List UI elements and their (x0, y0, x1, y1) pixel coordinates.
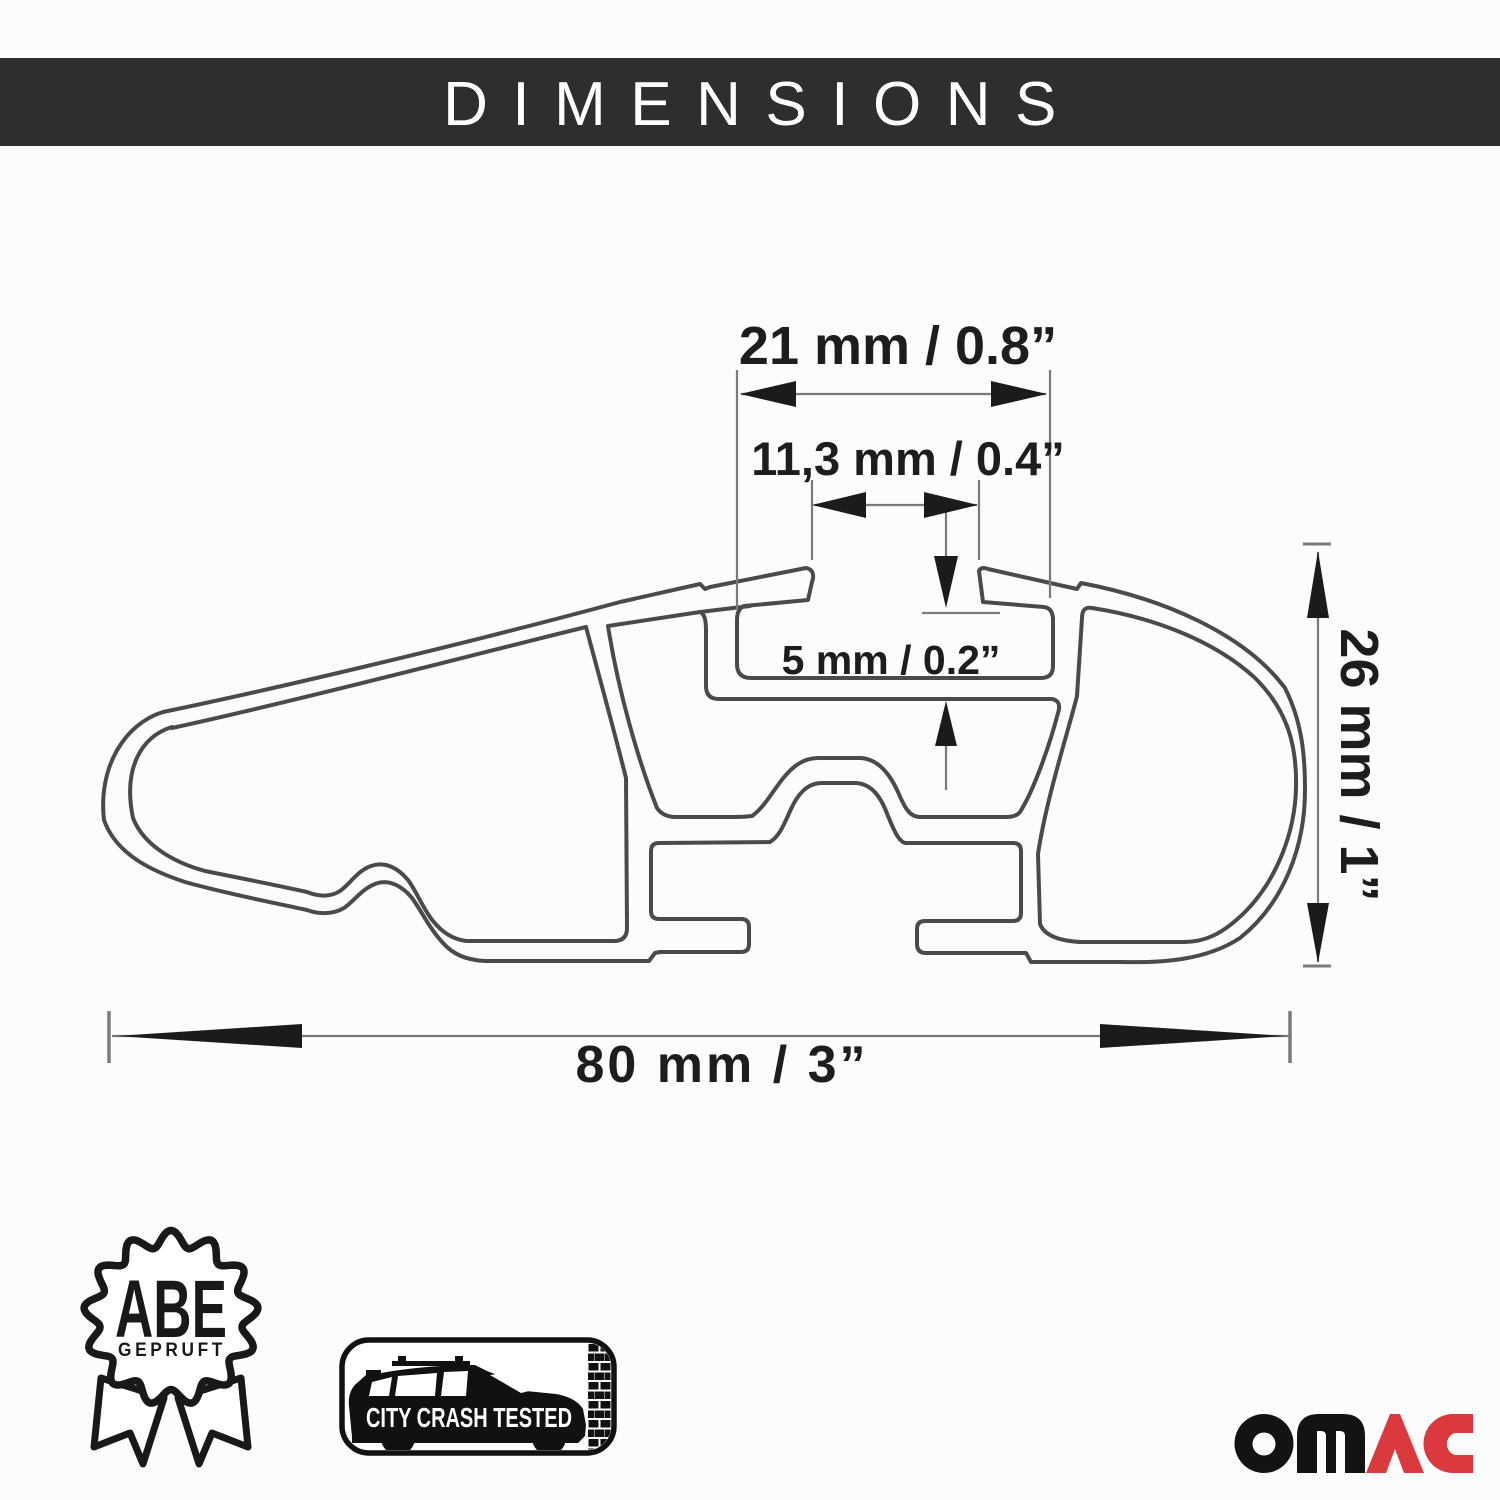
svg-text:26 mm / 1”: 26 mm / 1” (1329, 628, 1389, 901)
svg-text:DIMENSIONS: DIMENSIONS (443, 70, 1081, 139)
svg-text:80 mm / 3”: 80 mm / 3” (575, 1036, 868, 1094)
svg-text:11,3 mm / 0.4”: 11,3 mm / 0.4” (751, 432, 1065, 485)
svg-text:GEPRUFT: GEPRUFT (118, 1340, 226, 1361)
svg-text:5 mm / 0.2”: 5 mm / 0.2” (782, 637, 1001, 683)
svg-text:21 mm / 0.8”: 21 mm / 0.8” (739, 316, 1057, 376)
svg-text:CITY CRASH TESTED: CITY CRASH TESTED (366, 1402, 572, 1433)
